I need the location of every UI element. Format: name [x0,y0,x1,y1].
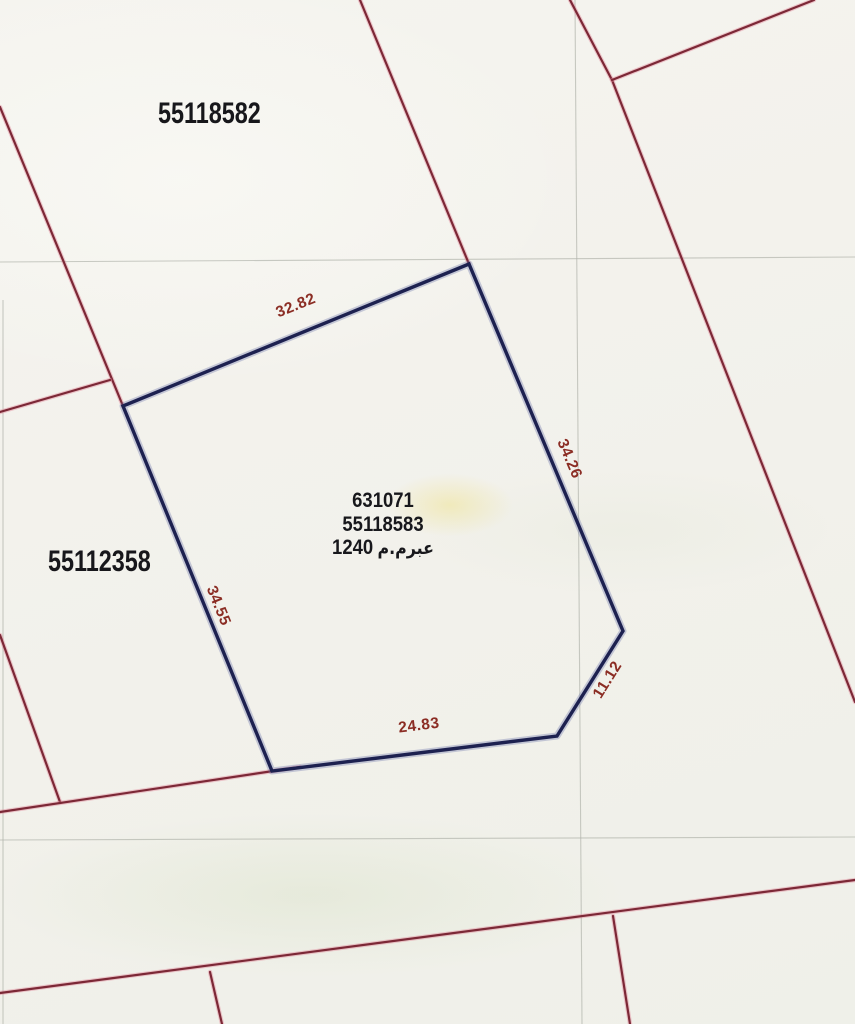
dimension-label-24.83: 24.83 [397,715,440,737]
road-lower-edge [0,880,855,993]
northeast-branch [612,0,814,80]
north-boundary [360,0,469,264]
parcel-label-55118582: 55118582 [158,97,261,131]
cadastral-map: 32.8234.2634.5524.8311.12 55118582 55112… [0,0,855,1024]
northeast-boundary-halo [570,0,855,702]
plot-area-label: 1240م.مربع [306,536,461,561]
dimension-label-32.82: 32.82 [274,290,319,321]
grid-horizontal-1 [0,257,855,262]
plot-parcel-number: 55118583 [306,513,461,537]
plot-area-value: 1240 [332,536,373,559]
south-branch-left [210,972,222,1024]
plot-plan-number: 631071 [306,489,461,513]
grid-horizontal-2 [0,837,855,840]
plot-area-unit: م.مربع [378,538,434,559]
parcel-label-55112358: 55112358 [48,545,151,579]
highlight-plot-label: 631071 55118583 1240م.مربع [306,489,461,561]
west-horizontal-boundary [0,380,110,412]
west-upper-boundary [0,107,123,406]
south-branch-right [613,916,630,1024]
road-upper-edge [0,767,300,812]
west-lower-boundary [0,635,60,802]
